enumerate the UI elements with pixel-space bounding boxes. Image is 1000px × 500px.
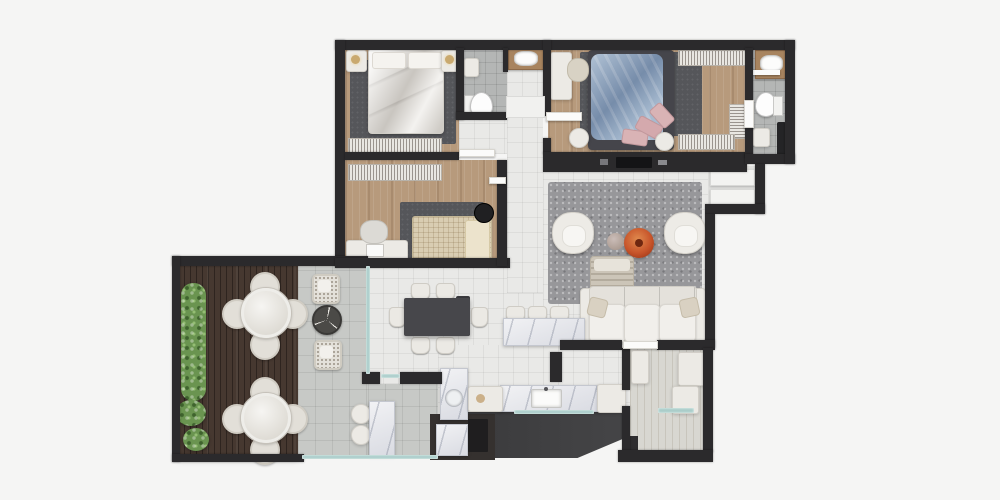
wall-closet-bottom	[705, 204, 765, 214]
chair-cushion	[320, 346, 333, 358]
wardrobe-rail	[348, 164, 442, 181]
wall-cabinet	[464, 58, 479, 77]
hallway-floor	[507, 48, 543, 293]
sofa-cushion	[624, 304, 661, 343]
bathroom-door	[506, 96, 545, 118]
vanity-sink	[514, 51, 538, 66]
bistro-chair	[351, 404, 371, 424]
wall-laundry-right	[703, 348, 713, 452]
grill-cabinet	[468, 419, 488, 452]
glass-terrace-door	[381, 374, 400, 378]
shrub	[183, 428, 209, 451]
glass-kitchen-railing	[514, 410, 594, 414]
glass-terrace-railing	[302, 455, 438, 459]
cabinet-left	[468, 386, 503, 412]
planter-hedge	[181, 283, 206, 401]
washer	[631, 350, 649, 384]
master-desk-chair	[567, 58, 589, 82]
master-bedroom-door	[546, 112, 582, 121]
faucet	[544, 387, 548, 391]
wall-kitchen-laundry-lower	[622, 406, 630, 452]
wall-bathroom-left	[456, 48, 464, 120]
wall-living-bottom-left	[560, 340, 622, 350]
outdoor-table	[241, 288, 291, 338]
tv	[616, 157, 652, 168]
wall-vanity-divider	[503, 48, 508, 72]
closet-rail	[678, 134, 735, 150]
wall-terrace-strip-a	[362, 372, 380, 384]
master-toilet-tank	[773, 96, 783, 116]
console-decor	[600, 159, 608, 165]
dining-chair	[411, 337, 430, 354]
wall-master-bath-upper	[745, 48, 753, 100]
dining-table	[404, 298, 470, 336]
bedroom-1-door	[459, 149, 495, 157]
coffee-table-center	[635, 239, 643, 247]
wall-bedroom2-bottom	[335, 258, 510, 268]
master-bathroom-door	[744, 100, 754, 128]
chair-cushion	[318, 280, 331, 292]
wall-terrace-bottom	[172, 454, 304, 462]
pillow	[408, 52, 442, 69]
floor-plan	[0, 0, 1000, 500]
wall-bathroom-bottom	[456, 112, 507, 120]
wall-left-exterior	[335, 40, 345, 266]
dining-chair	[436, 337, 455, 354]
wall-terrace-strip-b	[400, 372, 442, 384]
shrub	[176, 400, 206, 426]
wall-right-exterior	[785, 40, 795, 164]
round-sink	[445, 389, 463, 407]
sofa	[580, 286, 704, 342]
shower-control	[753, 128, 770, 147]
wall-laundry-bottom	[618, 450, 713, 462]
pouf-left	[569, 128, 589, 148]
pouf-right	[655, 132, 674, 151]
glass-shelf	[658, 408, 694, 413]
bedroom-2-door	[489, 177, 506, 184]
rattan-chair	[312, 274, 340, 304]
armchair-seat	[674, 225, 698, 247]
pillow	[372, 52, 406, 69]
single-bed	[412, 216, 492, 264]
side-table-small	[607, 233, 624, 250]
desk-chair	[360, 220, 388, 244]
laptop	[366, 244, 384, 257]
wall-kitchen-laundry-upper	[622, 348, 630, 390]
dining-chair	[471, 307, 488, 327]
round-side-table	[474, 203, 494, 223]
outdoor-table	[241, 393, 291, 443]
throw-pillow	[678, 296, 701, 319]
knob	[476, 394, 485, 403]
table-lamp	[445, 55, 454, 64]
round-side-table	[312, 305, 342, 335]
coffee-table-orange	[624, 228, 654, 258]
bistro-chair	[351, 425, 371, 445]
console-decor	[658, 160, 667, 165]
rattan-chair	[314, 340, 342, 370]
bistro-table	[369, 401, 395, 456]
wall-bedroom2-hall	[497, 160, 507, 266]
glass-terrace-divider	[366, 266, 370, 374]
kitchen-sink	[531, 389, 562, 408]
towel-shelf	[752, 70, 780, 75]
grill-nook-counter	[436, 424, 468, 456]
double-bed	[368, 48, 444, 134]
wall-kitchen-post	[550, 352, 562, 382]
ottoman-cushion	[594, 259, 630, 271]
pillow	[465, 220, 490, 261]
wall-bedroom-divider	[345, 152, 459, 160]
laundry-door	[623, 341, 658, 349]
armchair-right	[664, 212, 706, 254]
table-lamp	[351, 55, 360, 64]
armchair-left	[552, 212, 594, 254]
armchair-seat	[562, 225, 586, 247]
wall-top-exterior	[335, 40, 795, 50]
wall-terrace-left	[172, 256, 180, 462]
wall-living-right	[705, 214, 715, 348]
closet-rail	[678, 50, 747, 66]
